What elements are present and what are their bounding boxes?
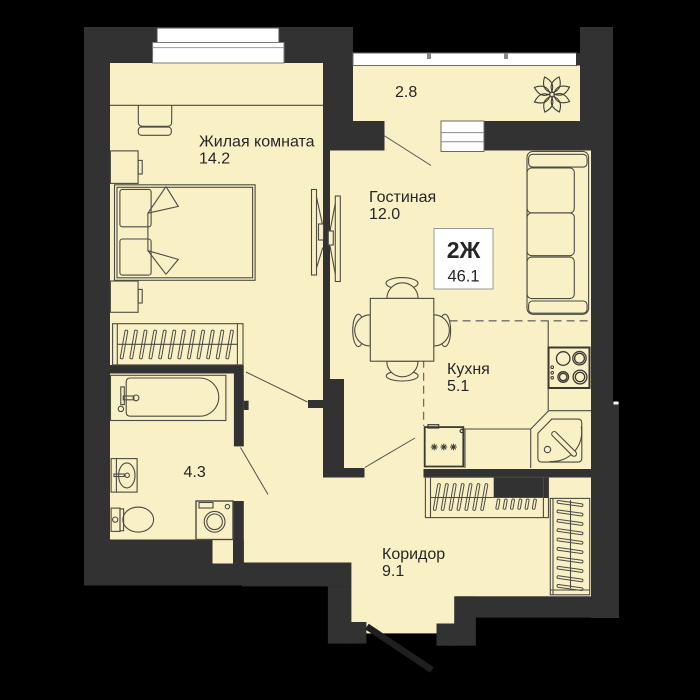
svg-text:4.3: 4.3: [184, 464, 206, 481]
svg-text:Кухня: Кухня: [447, 361, 490, 378]
svg-text:9.1: 9.1: [382, 563, 404, 580]
svg-text:14.2: 14.2: [199, 151, 230, 168]
svg-text:Гостиная: Гостиная: [369, 189, 436, 206]
svg-text:12.0: 12.0: [369, 206, 400, 223]
svg-text:2Ж: 2Ж: [447, 237, 481, 263]
svg-text:5.1: 5.1: [447, 378, 469, 395]
svg-text:2.8: 2.8: [395, 84, 417, 101]
svg-text:Коридор: Коридор: [382, 546, 445, 563]
svg-text:46.1: 46.1: [447, 268, 479, 286]
svg-text:Жилая комната: Жилая комната: [199, 134, 315, 151]
